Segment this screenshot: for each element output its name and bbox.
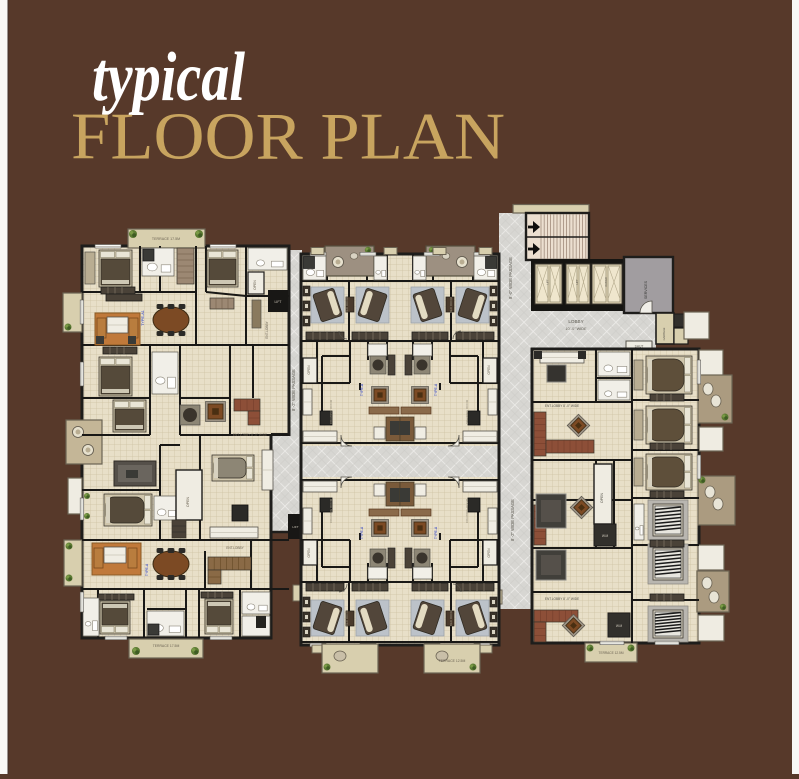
svg-text:BED ROOM: BED ROOM bbox=[449, 609, 453, 626]
svg-text:LIFT: LIFT bbox=[275, 300, 282, 304]
svg-text:W.M: W.M bbox=[616, 624, 623, 628]
svg-text:TYPE-A: TYPE-A bbox=[434, 383, 438, 396]
svg-text:BED ROOM: BED ROOM bbox=[345, 296, 349, 313]
svg-text:ENT.LOBBY 8´-0" WIDE: ENT.LOBBY 8´-0" WIDE bbox=[233, 433, 267, 437]
svg-text:TERRACE 12.5M: TERRACE 12.5M bbox=[599, 651, 624, 655]
svg-text:TYPE-A: TYPE-A bbox=[360, 526, 364, 539]
svg-text:TYPE-A1: TYPE-A1 bbox=[141, 310, 145, 326]
svg-text:BED ROOM: BED ROOM bbox=[345, 609, 349, 626]
svg-text:8´-0" WIDE PASSAGE: 8´-0" WIDE PASSAGE bbox=[508, 257, 513, 299]
svg-text:OPEN: OPEN bbox=[487, 365, 491, 375]
svg-text:OPEN: OPEN bbox=[487, 548, 491, 558]
svg-text:LIFT: LIFT bbox=[575, 279, 579, 285]
svg-text:OPEN: OPEN bbox=[600, 493, 604, 504]
svg-text:DRAWING ROOM: DRAWING ROOM bbox=[465, 498, 469, 523]
svg-text:FLOOR PLAN: FLOOR PLAN bbox=[71, 100, 505, 174]
svg-text:TERRACE 12.5M: TERRACE 12.5M bbox=[439, 659, 466, 663]
svg-text:8´-2" WIDE PASSAGE: 8´-2" WIDE PASSAGE bbox=[510, 499, 515, 541]
svg-text:OPEN: OPEN bbox=[307, 548, 311, 558]
svg-text:GARBAGE: GARBAGE bbox=[662, 327, 666, 340]
svg-text:TYPE-A: TYPE-A bbox=[145, 563, 149, 576]
svg-text:ENT.LOBBY 8´-0" WIDE: ENT.LOBBY 8´-0" WIDE bbox=[545, 597, 579, 601]
svg-text:LOBBY: LOBBY bbox=[568, 319, 583, 324]
svg-text:SERVICES: SERVICES bbox=[644, 280, 648, 299]
svg-text:OPEN: OPEN bbox=[253, 280, 257, 290]
svg-text:8´-2" WIDE PASSAGE: 8´-2" WIDE PASSAGE bbox=[291, 369, 296, 411]
svg-text:ENT.LOBBY: ENT.LOBBY bbox=[226, 546, 244, 550]
svg-text:ENT.LOBBY 8´-0" WIDE: ENT.LOBBY 8´-0" WIDE bbox=[545, 404, 579, 408]
svg-text:10´-0" WIDE: 10´-0" WIDE bbox=[565, 327, 587, 331]
svg-text:TERRACE 17.5M: TERRACE 17.5M bbox=[152, 237, 180, 241]
svg-text:BED ROOM: BED ROOM bbox=[449, 296, 453, 313]
svg-text:ENT.LOBBY: ENT.LOBBY bbox=[265, 320, 269, 338]
svg-text:OPEN: OPEN bbox=[186, 497, 190, 508]
svg-text:TYPE-A: TYPE-A bbox=[360, 383, 364, 396]
svg-text:DRAWING ROOM: DRAWING ROOM bbox=[329, 399, 333, 424]
svg-text:DRAWING ROOM: DRAWING ROOM bbox=[329, 498, 333, 523]
svg-text:W.M: W.M bbox=[602, 534, 609, 538]
svg-text:DRAWING ROOM: DRAWING ROOM bbox=[465, 399, 469, 424]
svg-text:OPEN: OPEN bbox=[307, 365, 311, 375]
svg-text:LIFT: LIFT bbox=[292, 525, 298, 529]
svg-text:TYPE-A: TYPE-A bbox=[434, 526, 438, 539]
svg-text:TERRACE 17.5M: TERRACE 17.5M bbox=[153, 644, 180, 648]
svg-text:LIFT: LIFT bbox=[546, 279, 550, 285]
svg-text:CARGO: CARGO bbox=[604, 277, 608, 287]
